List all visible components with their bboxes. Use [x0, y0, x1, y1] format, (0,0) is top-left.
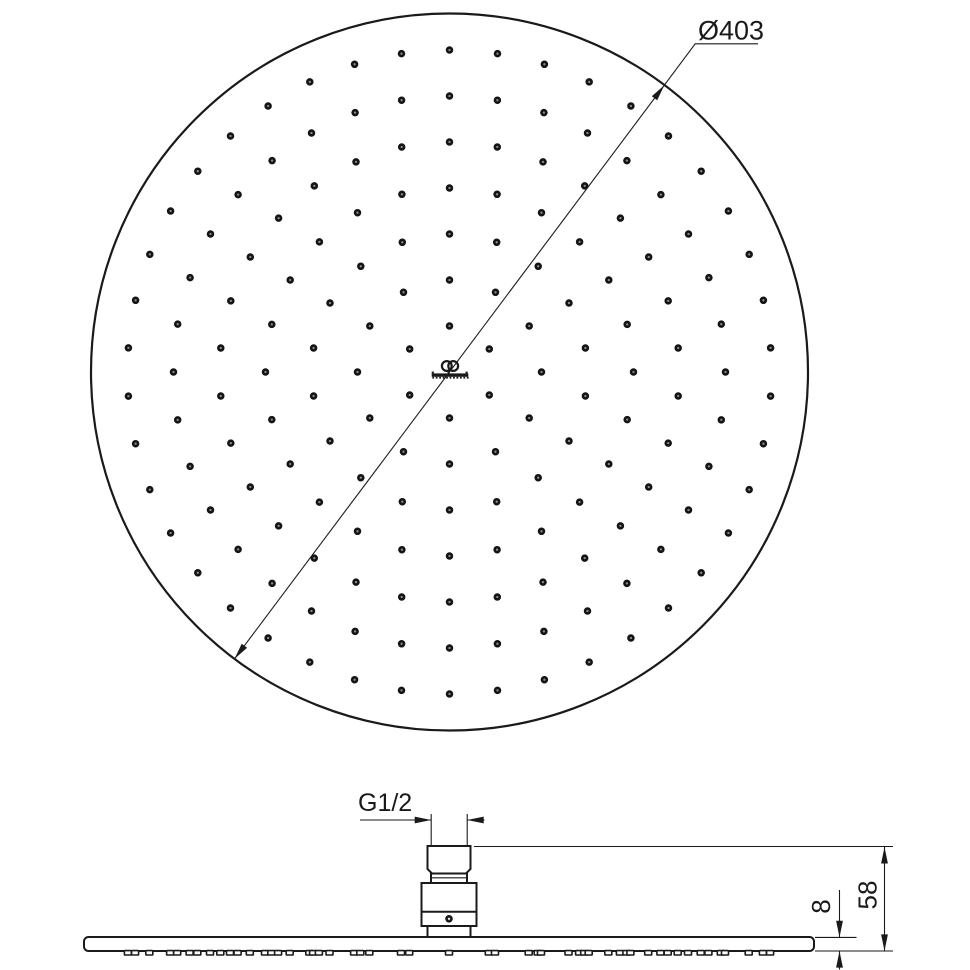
nozzle-bump: [174, 951, 181, 955]
nozzle-bump: [366, 951, 373, 955]
nozzle-bump: [246, 951, 253, 955]
shower-plate-profile: [84, 937, 814, 951]
nozzle-bump: [664, 951, 671, 955]
connector-base: [428, 926, 471, 937]
nozzle-bump: [657, 951, 664, 955]
nozzle-bump: [645, 951, 652, 955]
nozzle-bump: [132, 951, 139, 955]
nozzle-bump: [585, 951, 592, 955]
nozzle-bump: [167, 951, 174, 955]
nozzle-bumps: [124, 951, 773, 955]
nozzle-bump: [605, 951, 612, 955]
nozzle-bump: [565, 951, 572, 955]
nozzle-bump: [186, 951, 193, 955]
thread-label: G1/2: [358, 789, 412, 817]
nozzle-bump: [398, 951, 405, 955]
nozzle-bump: [124, 951, 131, 955]
nozzle-bump: [227, 951, 234, 955]
height-label: 58: [853, 881, 883, 910]
diameter-label: Ø403: [698, 16, 764, 46]
top-view: Ø403: [91, 14, 808, 731]
nozzle-bump: [275, 951, 282, 955]
thickness-label: 8: [806, 899, 836, 913]
nozzle-bump: [146, 951, 153, 955]
nozzle-bump: [326, 951, 333, 955]
nozzle-bump: [217, 951, 224, 955]
nozzle-bump: [234, 951, 241, 955]
nozzle-bump: [492, 951, 499, 955]
nozzle-bump: [685, 951, 692, 955]
arrowhead-icon: [415, 817, 432, 824]
nozzle-bump: [759, 951, 766, 955]
nozzle-bump: [705, 951, 712, 955]
diameter-leader-line: [664, 44, 758, 85]
technical-drawing-svg: Ø403: [0, 0, 970, 970]
inlet-connector: [422, 814, 477, 937]
nozzle-bump: [767, 951, 774, 955]
arrowhead-icon: [836, 921, 843, 938]
nozzle-bump: [745, 951, 752, 955]
nozzle-bump: [357, 951, 364, 955]
arrowhead-icon: [881, 934, 888, 951]
nozzle-bump: [268, 951, 275, 955]
thread-dimension: G1/2: [358, 789, 485, 820]
thickness-dimension: 8: [806, 890, 857, 970]
nozzle-bump: [538, 951, 545, 955]
side-view: G1/2 58 8: [84, 789, 893, 970]
connector-nut: [428, 846, 471, 874]
nozzle-bump: [722, 951, 729, 955]
nozzle-bump: [406, 951, 413, 955]
nozzle-bump: [446, 951, 453, 955]
nozzle-bump: [207, 951, 214, 955]
logo-wordmark-bar: [432, 373, 469, 376]
nozzle-bump: [194, 951, 201, 955]
nozzle-bump: [286, 951, 293, 955]
arrowhead-icon: [836, 951, 843, 968]
nozzle-bump: [525, 951, 532, 955]
nozzle-bump: [315, 951, 322, 955]
height-dimension: 58: [474, 847, 893, 952]
nozzle-bump: [674, 951, 681, 955]
arrowhead-icon: [467, 817, 484, 824]
connector-screw-center: [448, 918, 450, 920]
nozzle-bump: [697, 951, 704, 955]
nozzle-bump: [627, 951, 634, 955]
technical-drawing-page: Ø403: [0, 0, 970, 970]
arrowhead-icon: [881, 847, 888, 864]
